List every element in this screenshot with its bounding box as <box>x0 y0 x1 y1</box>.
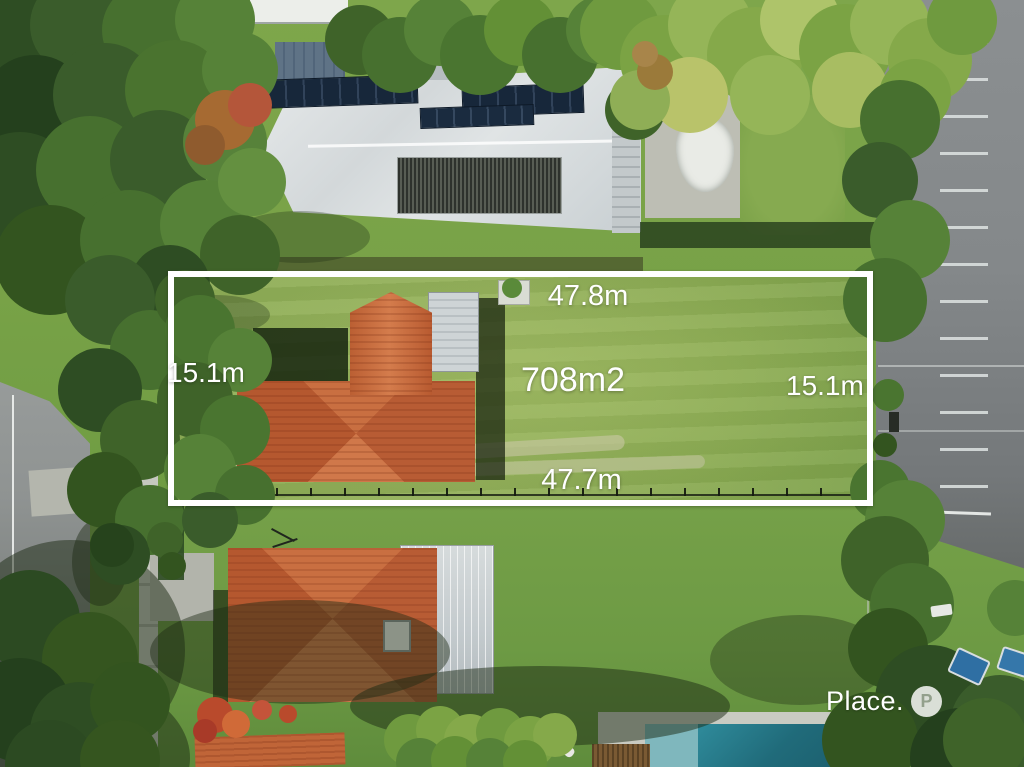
utility-pole <box>168 0 171 96</box>
dimension-label-bottom: 47.7m <box>514 464 649 497</box>
watermark-brand-text: Place. <box>826 686 904 717</box>
place-logo-icon: P <box>911 686 942 717</box>
swimming-pool <box>698 724 848 767</box>
grass-patch <box>740 95 845 235</box>
blue-grey-shed <box>275 42 345 80</box>
side-fence-line <box>867 505 869 653</box>
bottom-house-roof <box>194 732 345 767</box>
pavement-seam <box>878 365 1024 367</box>
watermark: Place. P <box>826 686 942 717</box>
solar-panel-array <box>268 74 419 108</box>
dimension-label-top: 47.8m <box>518 280 658 313</box>
dimension-label-right: 15.1m <box>786 370 864 402</box>
concrete-pad <box>150 553 214 621</box>
dimension-label-left: 15.1m <box>167 357 245 389</box>
roof-pergola-slats <box>397 157 562 214</box>
aerial-property-photo: 47.8m 47.7m 15.1m 15.1m 708m2 Place. P <box>0 0 1024 767</box>
area-label: 708m2 <box>493 361 653 400</box>
thatch-hut-roof <box>592 744 650 767</box>
balcony-stairs <box>612 118 640 233</box>
solar-panel-array <box>420 104 535 129</box>
skylight <box>383 620 411 652</box>
pavement-seam <box>878 430 1024 432</box>
pool-deck-top <box>250 0 348 24</box>
sign-post <box>889 412 899 432</box>
pool-steps <box>645 724 698 767</box>
watermark-badge-letter: P <box>921 691 933 712</box>
street-edge-line <box>12 395 14 685</box>
roof-vent <box>427 60 461 80</box>
driveway-apron <box>28 465 107 516</box>
parking-lot <box>876 0 1024 592</box>
rear-fence <box>168 257 643 271</box>
